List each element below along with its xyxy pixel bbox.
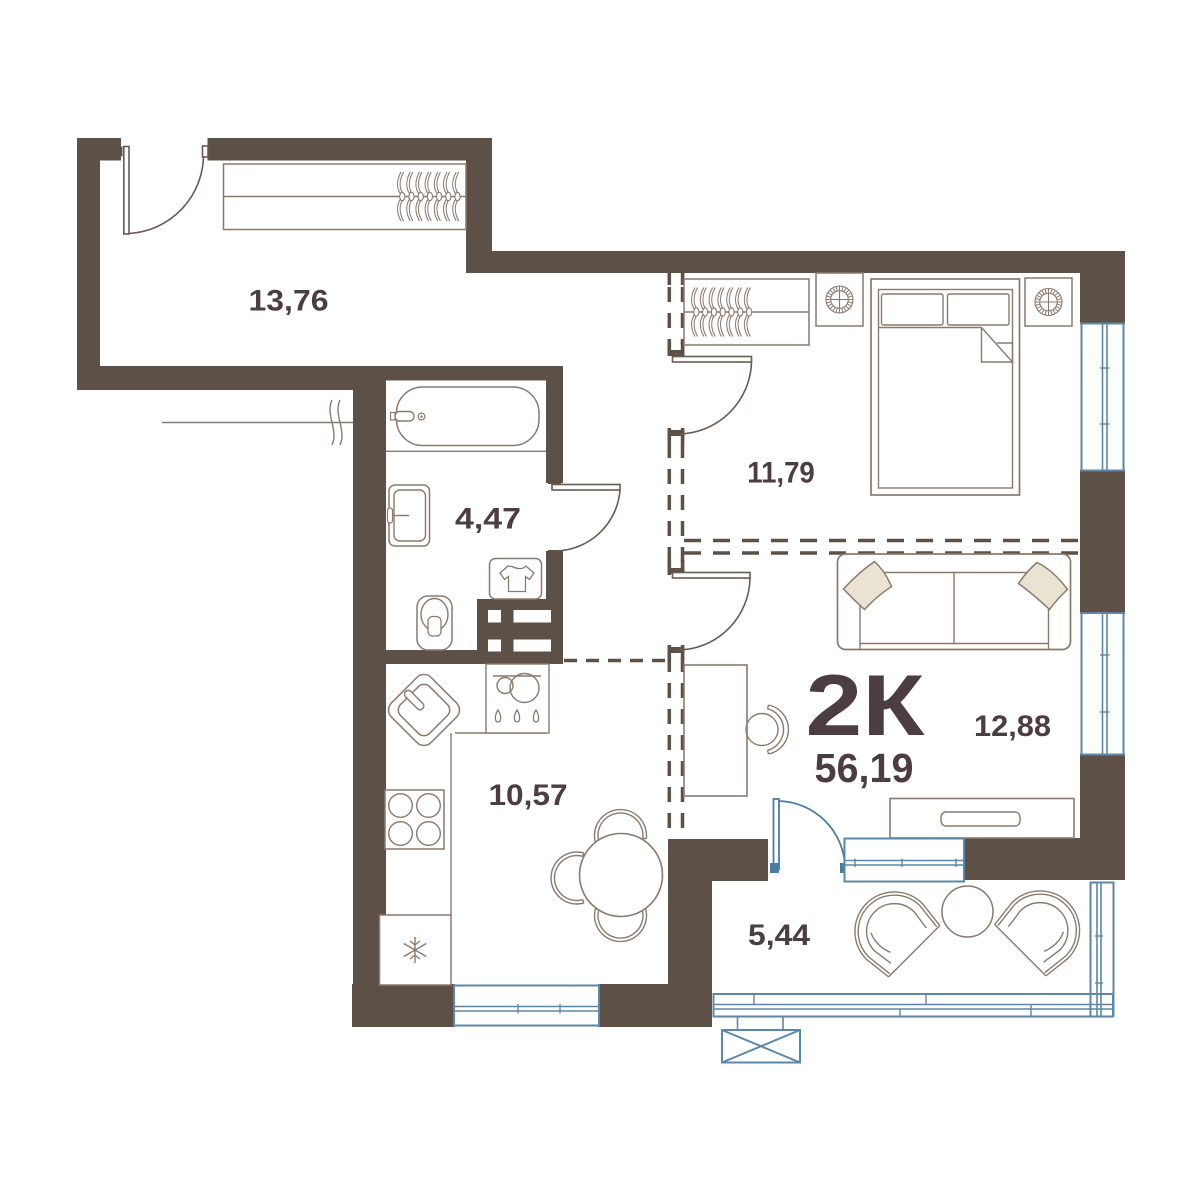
svg-text:11,79: 11,79 [747, 457, 815, 490]
svg-text:12,88: 12,88 [974, 710, 1051, 743]
svg-text:56,19: 56,19 [815, 745, 914, 791]
svg-text:4,47: 4,47 [455, 503, 521, 536]
svg-text:2К: 2К [806, 658, 926, 754]
svg-text:5,44: 5,44 [748, 919, 810, 952]
svg-text:13,76: 13,76 [249, 285, 329, 318]
svg-text:10,57: 10,57 [489, 779, 568, 812]
